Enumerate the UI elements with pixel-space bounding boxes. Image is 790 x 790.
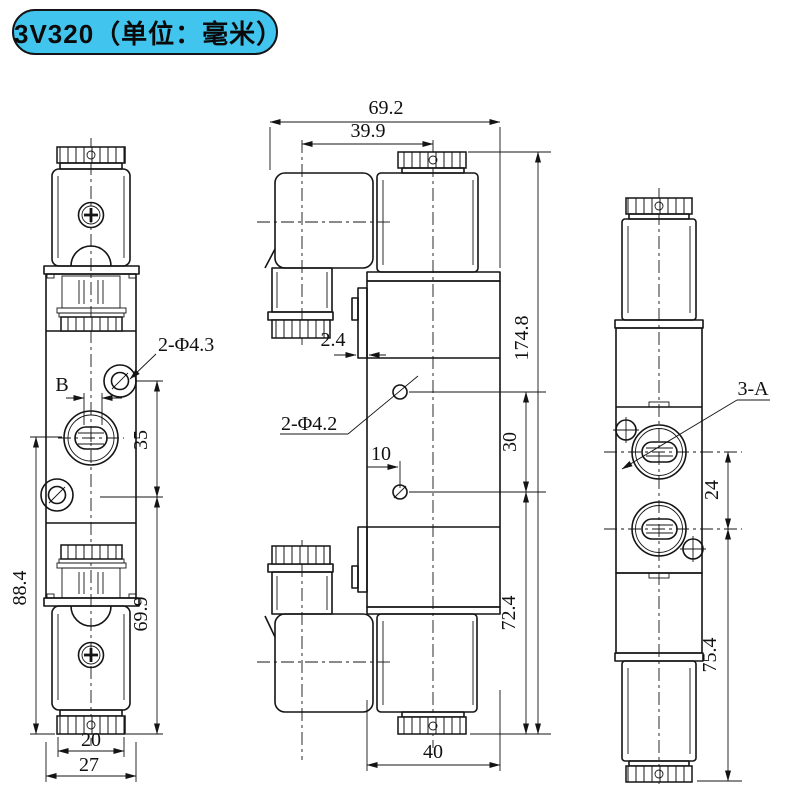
dim-end-port-spacing: 24 [701,480,723,500]
end-view: 3-A 24 75.4 [604,188,770,788]
side-view: 69.2 39.9 2.4 2-Φ4.2 10 30 72.4 174.8 [257,97,551,771]
side-bottom-knurled-cap [398,717,466,734]
side-top-solenoid [377,173,478,272]
technical-drawing: 2-Φ4.3 B 35 88.4 69.9 20 [0,0,790,790]
dim-side-lower-height: 72.4 [498,596,520,631]
dim-side-body-holes: 2-Φ4.2 [281,413,337,435]
dim-side-overall-width: 69.2 [369,97,404,119]
side-bottom-connector-knurl [272,546,330,564]
dim-front-overall-height: 88.4 [9,571,31,606]
front-top-adapter-knurl [61,317,122,331]
dim-end-lower-height: 75.4 [699,638,721,673]
end-bottom-knurled-cap [626,766,692,782]
side-top-knurled-cap [398,152,466,168]
drawing-canvas: 2-Φ4.3 B 35 88.4 69.9 20 [0,0,790,790]
dim-front-body-height: 69.9 [130,597,152,632]
dim-side-hole-offset: 10 [371,443,391,465]
side-top-strip [358,288,367,358]
dim-side-body-width: 40 [423,741,443,763]
dim-front-orifice: B [55,374,68,396]
dim-end-ports: 3-A [737,378,769,400]
title-label: 3V320（单位：毫米） [14,14,276,51]
dim-side-overall-height: 174.8 [511,316,533,361]
front-top-knurled-cap [57,147,125,163]
dim-side-hole-spacing: 30 [499,432,521,452]
front-bottom-collar [44,598,139,606]
side-bottom-connector [275,614,373,712]
dim-front-cap-width: 20 [81,729,101,751]
dim-side-plate-thickness: 2.4 [321,329,346,351]
end-top-knurled-cap [626,198,692,214]
front-view: 2-Φ4.3 B 35 88.4 69.9 20 [9,138,214,782]
side-bottom-strip [358,527,367,592]
dim-front-mount-holes: 2-Φ4.3 [158,334,214,356]
side-top-connector [275,173,373,268]
side-bottom-plate [367,607,500,614]
side-top-plate [367,272,500,281]
side-bottom-solenoid [377,614,477,712]
dim-front-hole-spacing: 35 [130,430,152,450]
dim-front-body-width: 27 [79,754,99,776]
front-top-collar [44,266,139,274]
title-badge: 3V320（单位：毫米） [12,9,278,55]
dim-side-connector-offset: 39.9 [351,120,386,142]
front-bottom-adapter-knurl [61,545,122,559]
